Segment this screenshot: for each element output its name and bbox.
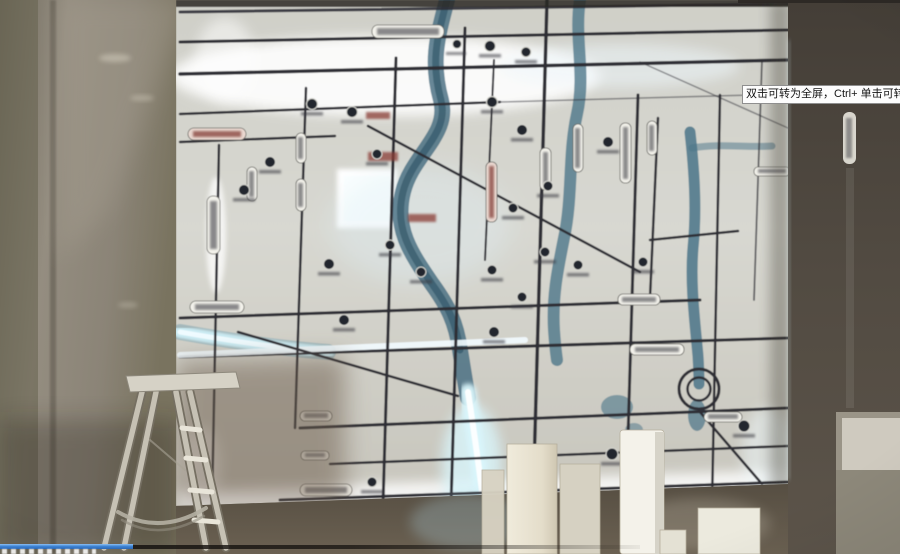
block [660,530,686,554]
video-surface[interactable] [0,0,900,554]
fullscreen-tooltip: 双击可转为全屏，Ctrl+ 单击可转为 [742,85,900,104]
block [560,464,600,554]
progress-bar[interactable] [0,544,900,550]
block [507,444,557,554]
ladder-top-cap [126,372,240,392]
block [482,470,504,554]
wall-scuff [130,95,154,101]
map-panel [170,0,794,525]
wall-scuff [99,54,131,62]
video-frame: 双击可转为全屏，Ctrl+ 单击可转为 [0,0,900,554]
watermark-text [2,549,96,554]
wall-scuff [118,302,138,308]
left-wall [0,0,190,554]
